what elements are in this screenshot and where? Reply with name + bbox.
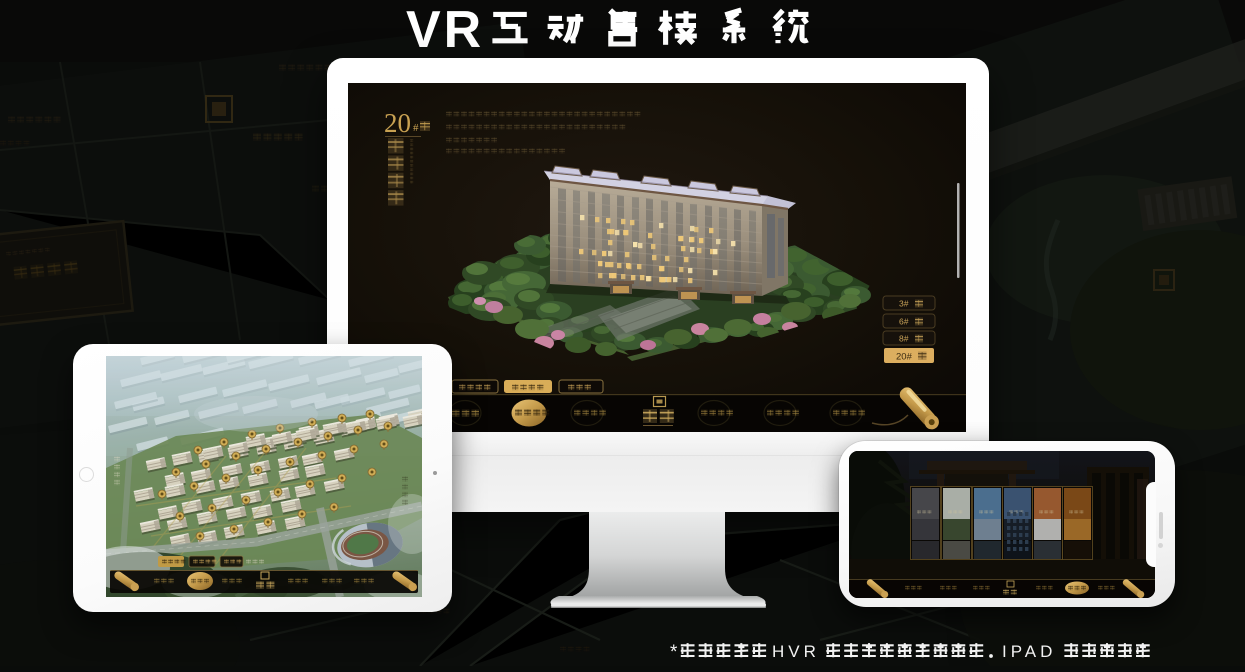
svg-text:*: *	[670, 642, 678, 663]
svg-text:VR: VR	[406, 1, 484, 59]
svg-text:3#: 3#	[899, 299, 909, 309]
svg-text:20#: 20#	[896, 352, 913, 363]
svg-text:8#: 8#	[899, 334, 909, 344]
svg-text:#: #	[413, 122, 419, 134]
svg-text:IPAD: IPAD	[1002, 642, 1056, 661]
svg-text:20: 20	[384, 108, 411, 138]
svg-text:HVR: HVR	[772, 642, 820, 661]
svg-text:6#: 6#	[899, 317, 909, 327]
